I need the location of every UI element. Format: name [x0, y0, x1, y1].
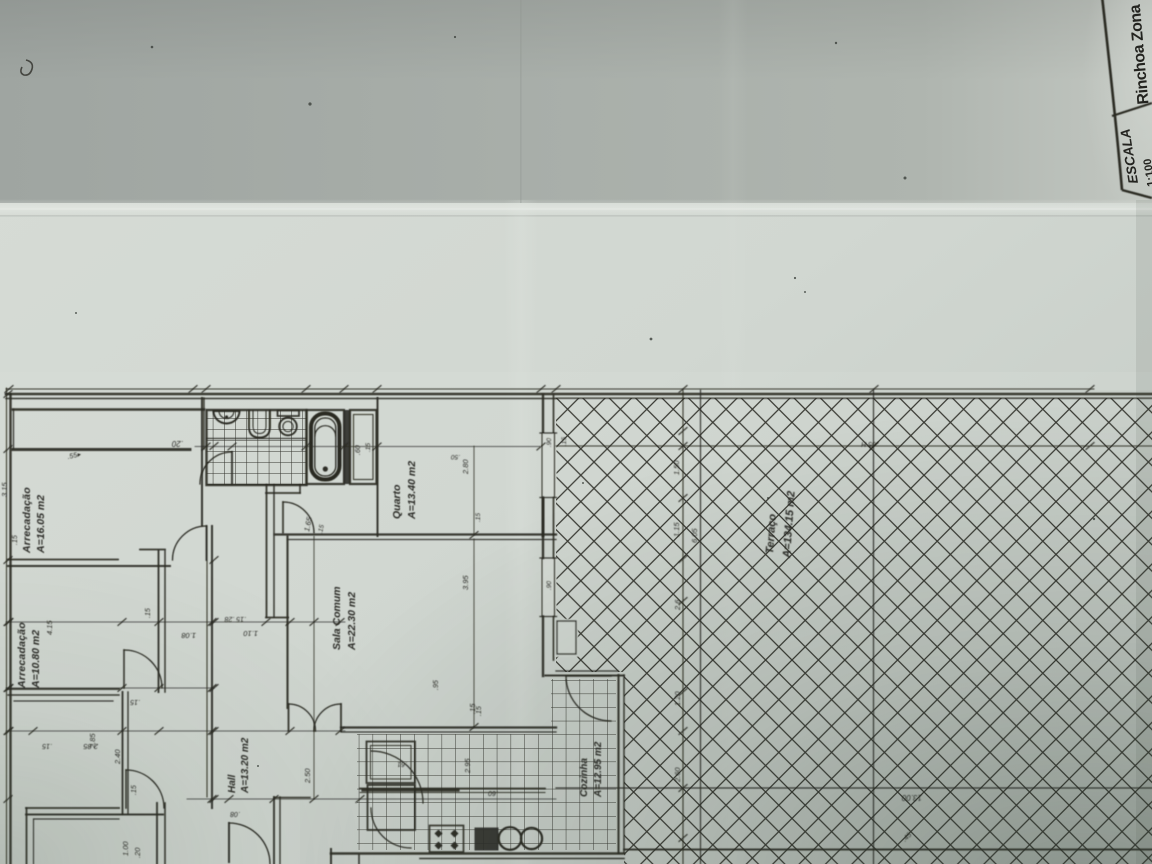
svg-text:3.15: 3.15 [0, 482, 9, 497]
svg-text:.15: .15 [12, 535, 19, 545]
svg-text:.20: .20 [171, 439, 183, 448]
svg-text:A=16.05 m2: A=16.05 m2 [35, 495, 47, 554]
svg-text:Arrecadação: Arrecadação [21, 487, 33, 554]
